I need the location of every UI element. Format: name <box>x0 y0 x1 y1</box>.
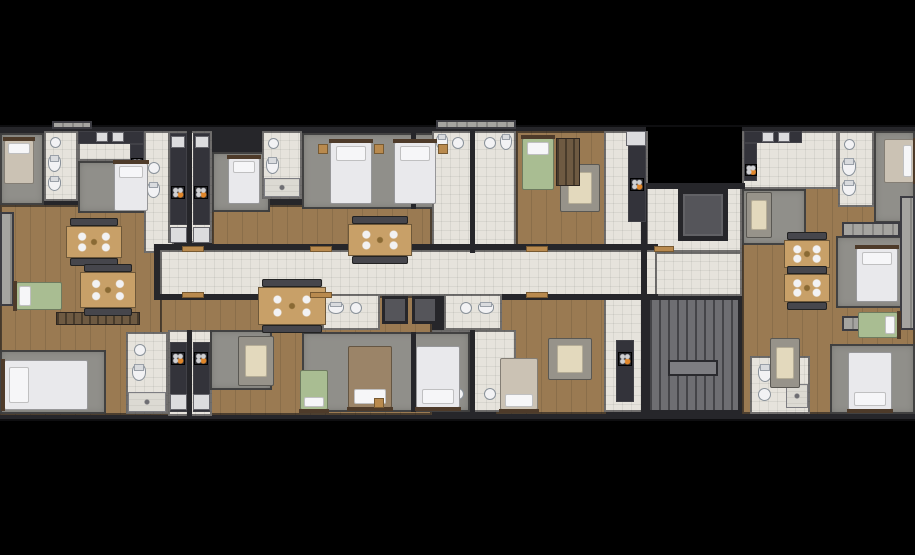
door-corr-2 <box>310 246 332 252</box>
stove-center-top <box>630 178 644 191</box>
bed-green-rb <box>858 312 898 338</box>
toilet-bath-t2 <box>266 157 279 174</box>
corridor-core-stub <box>646 252 742 296</box>
wardrobe-center-top <box>556 138 580 186</box>
toilet-corr-a <box>328 302 344 314</box>
sink-bath-bl <box>134 344 146 356</box>
stove-pb2 <box>194 352 208 365</box>
bed-mid-b1 <box>348 346 392 408</box>
appliance-tl-2 <box>112 132 124 142</box>
appliance-tl-1 <box>96 132 108 142</box>
appliance-pt1 <box>171 136 185 148</box>
toilet-lobby-t2 <box>500 134 512 150</box>
dining-table-mid-top <box>348 224 412 256</box>
sink-bath-rb <box>758 388 771 401</box>
fridge-pb2 <box>193 394 210 410</box>
dining-table-l1 <box>66 226 122 258</box>
bed-green-bl <box>16 282 62 310</box>
appliance-rt-2 <box>778 132 790 142</box>
balcony-ledge-rt <box>842 222 900 237</box>
bed-tl <box>4 140 34 184</box>
bed-mid-t1 <box>330 142 372 204</box>
door-corr-6 <box>526 292 548 298</box>
counter-tl <box>78 131 144 144</box>
stair-landing <box>668 360 718 376</box>
bed-center-b <box>500 358 538 410</box>
toilet-corr-b <box>478 302 494 314</box>
stove-pb1 <box>171 352 185 365</box>
elevator-shaft <box>678 189 728 241</box>
bed-mid-t2 <box>394 142 436 204</box>
appliance-rt-1 <box>762 132 774 142</box>
core-top-recess <box>646 127 742 183</box>
door-core <box>654 246 674 252</box>
sofa-rt <box>746 192 772 238</box>
bath-corridor-b <box>444 294 502 330</box>
door-corr-4 <box>182 292 204 298</box>
sink-entry <box>148 162 160 174</box>
counter-center-bottom <box>616 340 634 402</box>
bed-mid-b2 <box>416 346 460 408</box>
wall-kitchen-pair-top <box>187 131 192 243</box>
floor-plan <box>0 0 915 555</box>
sink-bath-tl <box>50 137 61 148</box>
stairwell <box>646 296 742 414</box>
nightstand-3 <box>438 144 448 154</box>
stove-rt <box>745 164 757 176</box>
shower-bath-bl <box>128 392 166 412</box>
nightstand-1 <box>318 144 328 154</box>
bed-t2 <box>114 163 148 211</box>
toilet-bath-tl <box>48 155 61 172</box>
bed-green-top <box>522 138 554 190</box>
bed-rb <box>848 352 892 410</box>
sink-lobby-t2 <box>484 137 496 149</box>
sofa-center-bottom <box>548 338 592 380</box>
bed-rm <box>856 248 898 302</box>
door-corr-5 <box>310 292 332 298</box>
fridge-pb1 <box>170 394 187 410</box>
sink-bath-t2 <box>268 138 279 149</box>
sink-corr-b <box>460 302 472 314</box>
bed-rt <box>884 139 914 183</box>
dining-table-l2 <box>80 272 136 308</box>
sink-lobby-b2 <box>484 388 496 400</box>
door-corr-3 <box>526 246 548 252</box>
bed-bl-large <box>4 360 88 410</box>
toilet-entry <box>147 182 160 198</box>
wall-lobby-top <box>470 131 475 253</box>
fridge-pt2 <box>193 227 210 243</box>
stove-center-bottom <box>618 352 632 366</box>
wall-lobby-bottom <box>470 330 475 412</box>
toilet-bath-rt <box>842 158 856 176</box>
duct-shaft-b <box>412 296 438 324</box>
sink-bath-rt <box>844 139 855 150</box>
sofa-bl <box>238 336 274 386</box>
toilet-bath-bl <box>132 364 146 381</box>
corridor-main <box>160 250 657 296</box>
balcony-bump-top-mid <box>436 120 516 129</box>
bed-green-mb <box>300 370 328 410</box>
door-corr-1 <box>182 246 204 252</box>
nightstand-4 <box>374 398 384 408</box>
sink-lobby-t1 <box>452 137 464 149</box>
shower-bath-t2 <box>264 178 300 197</box>
wall-corridor-end-left <box>154 244 160 300</box>
bidet-bath-rt <box>842 180 856 196</box>
stove-pt1 <box>171 186 185 199</box>
wall-kitchen-pair-bottom <box>187 330 192 416</box>
nightstand-2 <box>374 144 384 154</box>
dining-table-r2 <box>784 274 830 302</box>
dining-table-r1 <box>784 240 830 268</box>
balcony-left <box>0 212 14 306</box>
sink-corr-a <box>350 302 362 314</box>
bed-t3 <box>228 158 260 204</box>
bidet-bath-tl <box>48 176 61 191</box>
duct-shaft-a <box>382 296 408 324</box>
balcony-right <box>900 196 915 330</box>
balcony-bump-top-left <box>52 121 92 129</box>
fridge-pt1 <box>170 227 187 243</box>
appliance-pt2 <box>195 136 209 148</box>
fridge-center-top <box>626 131 646 146</box>
stove-pt2 <box>194 186 208 199</box>
sofa-rb <box>770 338 800 388</box>
